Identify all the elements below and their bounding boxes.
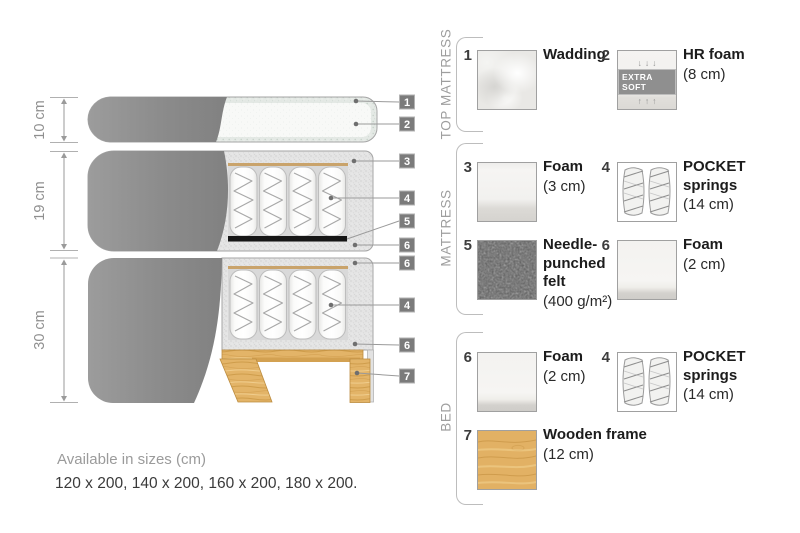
svg-text:1: 1 [404, 97, 410, 109]
wooden-frame [220, 350, 370, 403]
tag-3: 3 [400, 154, 415, 168]
felt-layer [228, 236, 347, 242]
tag-6c: 6 [400, 338, 415, 352]
legend-label-pocket-springs-bed: POCKET springs (14 cm) [683, 348, 763, 404]
tag-4b: 4 [400, 298, 415, 312]
svg-text:4: 4 [404, 300, 411, 312]
legend-number-pocket-springs-bed: 4 [586, 349, 610, 366]
legend-label-foam2-mattress: Foam (2 cm) [683, 236, 763, 274]
pocket-springs-graphic [618, 163, 676, 221]
dimension-arrows [50, 98, 78, 403]
wadding-texture [478, 51, 536, 109]
legend-number-wadding: 1 [448, 47, 472, 64]
tag-5: 5 [400, 214, 415, 228]
legend-number-felt: 5 [448, 237, 472, 254]
dim-top-mattress: 10 cm [32, 100, 48, 140]
arrows-up: ↑↑↑ [635, 96, 660, 106]
foam-texture [618, 241, 676, 299]
tag-1: 1 [400, 95, 415, 109]
svg-text:7: 7 [404, 371, 410, 383]
wadding-swatch [477, 50, 537, 110]
tag-6: 6 [400, 238, 415, 252]
legend-label-pocket-springs: POCKET springs (14 cm) [683, 158, 763, 214]
bed-illustration [88, 258, 374, 403]
legend-label-wadding: Wadding [543, 46, 623, 65]
felt-graphic [478, 241, 536, 299]
foam2-mattress-swatch [617, 240, 677, 300]
pocket-springs-graphic [618, 353, 676, 411]
svg-text:6: 6 [404, 258, 410, 270]
mattress-illustration [88, 151, 373, 251]
svg-text:4: 4 [404, 193, 411, 205]
wooden-frame-swatch [477, 430, 537, 490]
legend-label-hr-foam: HR foam (8 cm) [683, 46, 763, 84]
legend-number-hr-foam: 2 [586, 47, 610, 64]
tag-4: 4 [400, 191, 415, 205]
legend-label-wooden-frame: Wooden frame (12 cm) [543, 426, 683, 464]
tag-6b: 6 [400, 256, 415, 270]
sizes-caption: Available in sizes (cm) [57, 451, 206, 468]
hr-foam-swatch: ↓↓↓ EXTRA SOFT ↑↑↑ [617, 50, 677, 110]
dimension-labels: 10 cm 19 cm 30 cm [32, 100, 48, 350]
sizes-list: 120 x 200, 140 x 200, 160 x 200, 180 x 2… [55, 475, 358, 493]
legend-label-foam3: Foam (3 cm) [543, 158, 623, 196]
legend-number-pocket-springs: 4 [586, 159, 610, 176]
felt-swatch [477, 240, 537, 300]
foam2-bed-swatch [477, 352, 537, 412]
tag-2: 2 [400, 117, 415, 131]
legend-number-foam2-bed: 6 [448, 349, 472, 366]
legend-label-foam2-bed: Foam (2 cm) [543, 348, 623, 386]
legend-number-wooden-frame: 7 [448, 427, 472, 444]
foam3-swatch [477, 162, 537, 222]
dim-bed: 30 cm [32, 310, 48, 350]
foam-texture [478, 353, 536, 411]
foam-texture [478, 163, 536, 221]
legend-number-foam3: 3 [448, 159, 472, 176]
pocket-springs-bed-swatch [617, 352, 677, 412]
wood-graphic [478, 431, 536, 489]
dim-mattress: 19 cm [32, 181, 48, 221]
tag-7: 7 [400, 369, 415, 383]
svg-text:2: 2 [404, 119, 410, 131]
svg-text:5: 5 [404, 216, 410, 228]
legend-number-foam2-mattress: 6 [586, 237, 610, 254]
arrows-down: ↓↓↓ [635, 58, 660, 68]
top-mattress-illustration [88, 97, 377, 142]
pocket-springs-swatch [617, 162, 677, 222]
svg-text:6: 6 [404, 340, 410, 352]
infographic-page: 10 cm 19 cm 30 cm [0, 0, 800, 533]
svg-text:3: 3 [404, 156, 410, 168]
svg-text:6: 6 [404, 240, 410, 252]
number-tags: 1 2 3 4 5 6 6 4 6 7 [400, 95, 415, 383]
legend-label-felt: Needle-punched felt (400 g/m²) [543, 236, 623, 311]
hr-foam-texture: ↓↓↓ EXTRA SOFT ↑↑↑ [618, 51, 676, 109]
extra-soft-badge: EXTRA SOFT [618, 69, 676, 95]
